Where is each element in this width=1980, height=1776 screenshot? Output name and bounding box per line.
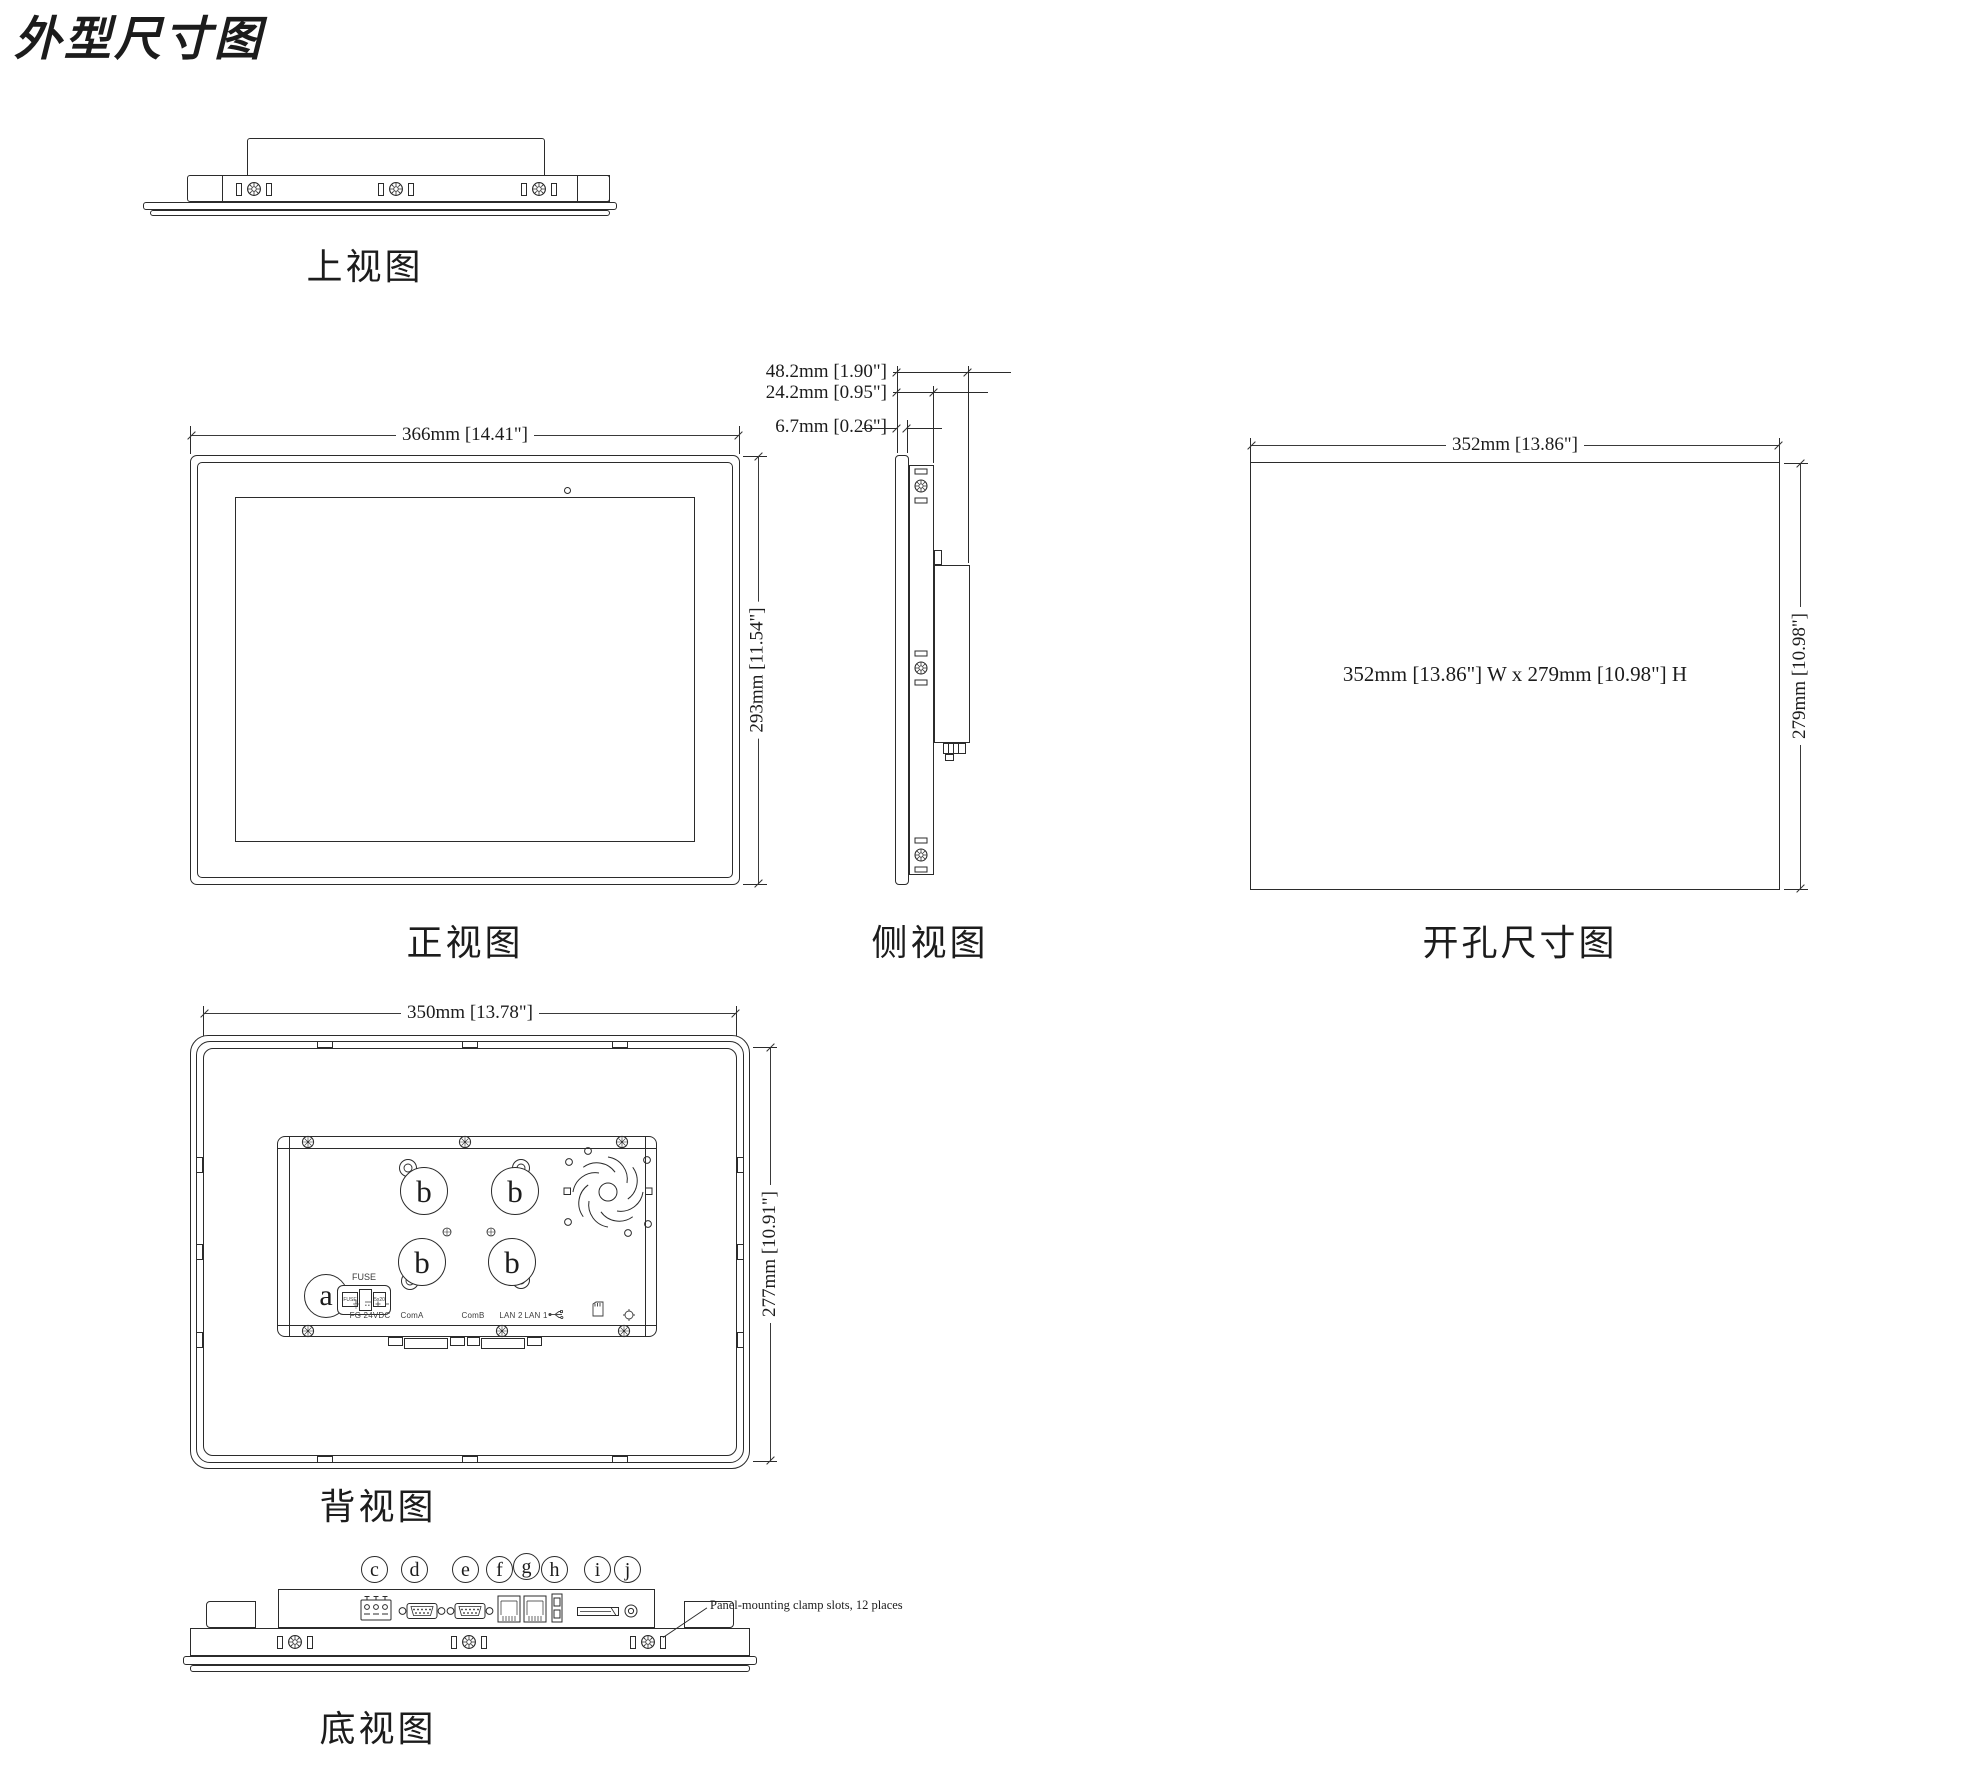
top-view: 上视图	[0, 0, 1980, 1776]
dim-tick	[1247, 441, 1255, 449]
callout-e: e	[452, 1556, 479, 1583]
cutout-width-dimension: 352mm [13.86"]	[1250, 434, 1780, 456]
clamp-slot-icon	[378, 181, 414, 197]
clamp-slot-tab	[630, 1636, 636, 1649]
usb-port	[551, 1593, 563, 1623]
top-view-bezel-strip-inner	[150, 210, 610, 216]
fuse-block-right-cell	[373, 1292, 386, 1307]
dim-tick	[731, 1009, 739, 1017]
extension-line	[743, 456, 767, 457]
bottom-view-end-cap-left	[206, 1601, 256, 1628]
sd-card-slot	[577, 1607, 619, 1616]
rear-connector-stub	[467, 1337, 480, 1346]
bottom-view-end-cap-right	[684, 1601, 734, 1628]
screw-icon	[914, 848, 929, 863]
clamp-notch	[737, 1157, 744, 1173]
callout-f: f	[486, 1556, 513, 1583]
rear-width-dim-text: 350mm [13.78"]	[401, 1002, 539, 1024]
screw-icon	[615, 1135, 629, 1149]
port-label-lan1: LAN 1	[522, 1311, 550, 1320]
dim-tick	[1796, 884, 1804, 892]
side-view-rear-box	[934, 565, 970, 743]
extension-line	[897, 366, 898, 453]
fuse-right-text: 5x20	[373, 1297, 386, 1303]
dim-tick	[754, 452, 762, 460]
clamp-slot-tab	[660, 1636, 666, 1649]
equipment-box-left-wall	[289, 1137, 290, 1336]
rear-connector-stub	[450, 1337, 465, 1346]
clamp-notch	[196, 1244, 203, 1260]
screw-icon	[531, 181, 547, 197]
cutout-height-dim-text: 279mm [10.98"]	[1787, 607, 1813, 745]
top-view-rear-enclosure	[247, 138, 545, 176]
clamp-notch	[737, 1332, 744, 1348]
front-width-dimension: 366mm [14.41"]	[190, 424, 740, 446]
audio-jack-connector	[624, 1604, 638, 1618]
clamp-slot-icon	[236, 181, 272, 197]
screw-icon	[495, 1324, 509, 1338]
clamp-slot-tab	[277, 1636, 283, 1649]
screw-icon	[458, 1135, 472, 1149]
extension-line	[1784, 463, 1808, 464]
front-width-dim-text: 366mm [14.41"]	[396, 424, 534, 446]
clamp-slot-tab	[915, 867, 928, 873]
clamp-slot-icon	[451, 1634, 487, 1650]
ethernet-rj45-port	[497, 1595, 521, 1623]
clamp-notch	[196, 1157, 203, 1173]
port-label-comb: ComB	[447, 1311, 499, 1320]
extension-line	[1779, 438, 1780, 464]
power-symbols-icon	[352, 1299, 392, 1309]
page-title: 外型尺寸图	[14, 0, 264, 69]
vesa-hole-icon	[511, 1270, 531, 1290]
dim-tick	[1774, 441, 1782, 449]
port-label-power: FG 24VDC	[340, 1311, 400, 1320]
extension-line	[933, 386, 934, 463]
side-total-depth-text: 48.2mm [1.90"]	[735, 361, 887, 383]
dim-tick	[963, 368, 971, 376]
fuse-title: FUSE	[337, 1272, 391, 1282]
front-height-dimension: 293mm [11.54"]	[746, 456, 770, 884]
front-height-dim-text: 293mm [11.54"]	[745, 601, 771, 738]
port-label-coma: ComA	[386, 1311, 438, 1320]
dim-tick	[200, 1009, 208, 1017]
clamp-slot-tab	[481, 1636, 487, 1649]
dim-tick	[892, 368, 900, 376]
screw-icon	[246, 181, 262, 197]
front-view-outline	[190, 455, 740, 885]
callout-c: c	[361, 1556, 388, 1583]
dim-tick	[892, 424, 900, 432]
usb-icon	[548, 1309, 564, 1320]
side-body-depth-text: 24.2mm [0.95"]	[735, 382, 887, 404]
screw-icon	[640, 1634, 656, 1650]
screw-icon	[617, 1324, 631, 1338]
vesa-hole-icon	[400, 1271, 420, 1291]
side-view-bezel	[895, 455, 909, 885]
top-view-label: 上视图	[285, 238, 445, 290]
clamp-notch	[462, 1041, 478, 1048]
clamp-slot-tab	[915, 498, 928, 504]
extension-line	[1784, 889, 1808, 890]
bottom-view-main-bar	[190, 1628, 750, 1656]
rear-height-dimension: 277mm [10.91"]	[758, 1047, 782, 1461]
front-led-dot	[564, 487, 571, 494]
extension-line	[753, 1047, 777, 1048]
callout-b: b	[398, 1238, 446, 1286]
front-view-display-area	[235, 497, 695, 842]
serial-db9-connector	[446, 1600, 494, 1622]
bottom-view: c d e f g h i j	[0, 0, 1980, 1776]
callout-h: h	[541, 1556, 568, 1583]
callout-b: b	[491, 1167, 539, 1215]
side-view: 48.2mm [1.90"] 24.2mm [0.95"] 6.7mm [0.2…	[0, 0, 1980, 1776]
dim-tick	[766, 1043, 774, 1051]
extension-line	[203, 1006, 204, 1036]
connector-ridge	[948, 744, 949, 753]
screw-icon	[388, 181, 404, 197]
clamp-slot-icon	[914, 469, 929, 504]
power-terminal-connector	[360, 1595, 392, 1621]
vesa-hole-icon	[511, 1158, 531, 1178]
bottom-view-bezel-strip-outer	[183, 1656, 757, 1665]
callout-d: d	[401, 1556, 428, 1583]
equipment-box-top-band	[278, 1148, 656, 1149]
rear-width-dimension: 350mm [13.78"]	[203, 1002, 737, 1024]
rear-view-outline	[190, 1035, 750, 1469]
clamp-notch	[317, 1041, 333, 1048]
clamp-slot-tab	[915, 469, 928, 475]
callout-a: a	[304, 1274, 348, 1318]
extension-line	[753, 1461, 777, 1462]
top-view-end-cap-right	[577, 175, 610, 202]
port-label-lan2: LAN 2	[497, 1311, 525, 1320]
rear-view-outline-2	[196, 1041, 744, 1463]
clamp-slot-icon	[521, 181, 557, 197]
dim-tick	[754, 879, 762, 887]
clamp-slot-tab	[451, 1636, 457, 1649]
top-view-end-cap-left	[187, 175, 223, 202]
fuse-left-text: FUSE	[342, 1297, 358, 1303]
rear-equipment-box	[277, 1136, 657, 1337]
serial-db9-connector	[398, 1600, 446, 1622]
rear-connector-stub	[388, 1337, 403, 1346]
callout-b: b	[488, 1238, 536, 1286]
screw-icon	[914, 661, 929, 676]
rear-connector-stub	[404, 1338, 448, 1349]
screw-icon	[914, 479, 929, 494]
bottom-view-connector-bar	[278, 1589, 655, 1628]
rear-view-label: 背视图	[298, 1478, 458, 1530]
screw-icon	[442, 1227, 452, 1237]
clamp-slot-tab	[378, 183, 384, 196]
side-view-connector-step	[945, 754, 954, 761]
extension-line	[968, 366, 969, 563]
fuse-block	[337, 1285, 391, 1315]
screw-icon	[287, 1634, 303, 1650]
cutout-width-dim-text: 352mm [13.86"]	[1446, 434, 1584, 456]
clamp-slot-tab	[915, 838, 928, 844]
leader-line	[663, 1607, 707, 1637]
side-view-panel-body	[909, 465, 934, 875]
cutout-center-note: 352mm [13.86"] W x 279mm [10.98"] H	[1250, 662, 1780, 687]
dim-tick	[187, 431, 195, 439]
extension-line	[739, 426, 740, 454]
side-body-depth-line	[893, 392, 988, 393]
clamp-slot-tab	[408, 183, 414, 196]
clamp-notch	[317, 1456, 333, 1463]
clamp-slot-tab	[521, 183, 527, 196]
fuse-block-left-cell	[342, 1292, 358, 1307]
screw-icon	[301, 1135, 315, 1149]
clamp-slot-tab	[236, 183, 242, 196]
clamp-slot-tab	[307, 1636, 313, 1649]
extension-line	[736, 1006, 737, 1036]
clamp-slot-tab	[915, 651, 928, 657]
rear-connector-stub	[527, 1337, 542, 1346]
side-view-notch	[934, 550, 942, 565]
rear-view-outline-3	[203, 1048, 737, 1456]
callout-b: b	[400, 1167, 448, 1215]
clamp-notch	[196, 1332, 203, 1348]
dimension-drawing-canvas: 外型尺寸图 上视图	[0, 0, 1980, 1776]
clamp-slot-icon	[277, 1634, 313, 1650]
cutout-view: 352mm [13.86"] W x 279mm [10.98"] H 352m…	[0, 0, 1980, 1776]
cutout-height-dimension: 279mm [10.98"]	[1788, 463, 1812, 889]
rear-height-dim-text: 277mm [10.91"]	[757, 1185, 783, 1323]
rear-view: b b b b	[0, 0, 1980, 1776]
dim-tick	[892, 388, 900, 396]
front-view-label: 正视图	[385, 914, 545, 966]
vesa-hole-icon	[398, 1158, 418, 1178]
dim-tick	[766, 1456, 774, 1464]
clamp-notch	[612, 1041, 628, 1048]
screw-icon	[461, 1634, 477, 1650]
extension-line	[907, 420, 908, 453]
screw-icon	[486, 1227, 496, 1237]
equipment-box-right-wall	[645, 1137, 646, 1336]
clamp-note: Panel-mounting clamp slots, 12 places	[710, 1598, 903, 1613]
clamp-slot-icon	[914, 838, 929, 873]
clamp-slot-tab	[915, 680, 928, 686]
cutout-view-label: 开孔尺寸图	[1380, 914, 1660, 966]
side-bezel-depth-line	[862, 428, 897, 429]
side-view-label: 侧视图	[845, 914, 1015, 966]
extension-line	[190, 426, 191, 454]
clamp-slot-icon	[630, 1634, 666, 1650]
cutout-outline	[1250, 462, 1780, 890]
front-view-inner-outline	[197, 462, 733, 878]
connector-ridge	[958, 744, 959, 753]
dim-tick	[1796, 459, 1804, 467]
clamp-notch	[612, 1456, 628, 1463]
callout-j: j	[614, 1556, 641, 1583]
front-view: 366mm [14.41"] 293mm [11.54"] 正视图	[0, 0, 1980, 1776]
side-total-depth-line	[893, 372, 1011, 373]
fuse-block-holder	[359, 1289, 372, 1311]
dim-tick	[929, 388, 937, 396]
top-view-bezel-strip-outer	[143, 202, 617, 210]
bottom-view-label: 底视图	[298, 1700, 458, 1752]
sd-card-icon	[592, 1301, 604, 1317]
clamp-slot-icon	[914, 651, 929, 686]
side-view-bottom-connector	[943, 743, 966, 754]
ethernet-rj45-port	[523, 1595, 547, 1623]
extension-line	[1250, 438, 1251, 464]
callout-g: g	[513, 1553, 540, 1580]
connector-ridge	[953, 744, 954, 753]
fan-grille-icon	[561, 1145, 655, 1239]
dim-tick	[734, 431, 742, 439]
dim-tick	[902, 424, 910, 432]
clamp-notch	[737, 1244, 744, 1260]
bottom-view-bezel-strip-inner	[190, 1665, 750, 1672]
ground-screw-icon	[623, 1309, 635, 1321]
screw-icon	[301, 1324, 315, 1338]
side-bezel-depth-text: 6.7mm [0.26"]	[743, 416, 887, 438]
callout-i: i	[584, 1556, 611, 1583]
side-bezel-depth-line	[907, 428, 942, 429]
extension-line	[743, 884, 767, 885]
rear-connector-stub	[481, 1338, 525, 1349]
top-view-main-bar	[190, 175, 610, 202]
clamp-slot-tab	[551, 183, 557, 196]
clamp-slot-tab	[266, 183, 272, 196]
clamp-notch	[462, 1456, 478, 1463]
equipment-box-bottom-band	[278, 1325, 656, 1326]
